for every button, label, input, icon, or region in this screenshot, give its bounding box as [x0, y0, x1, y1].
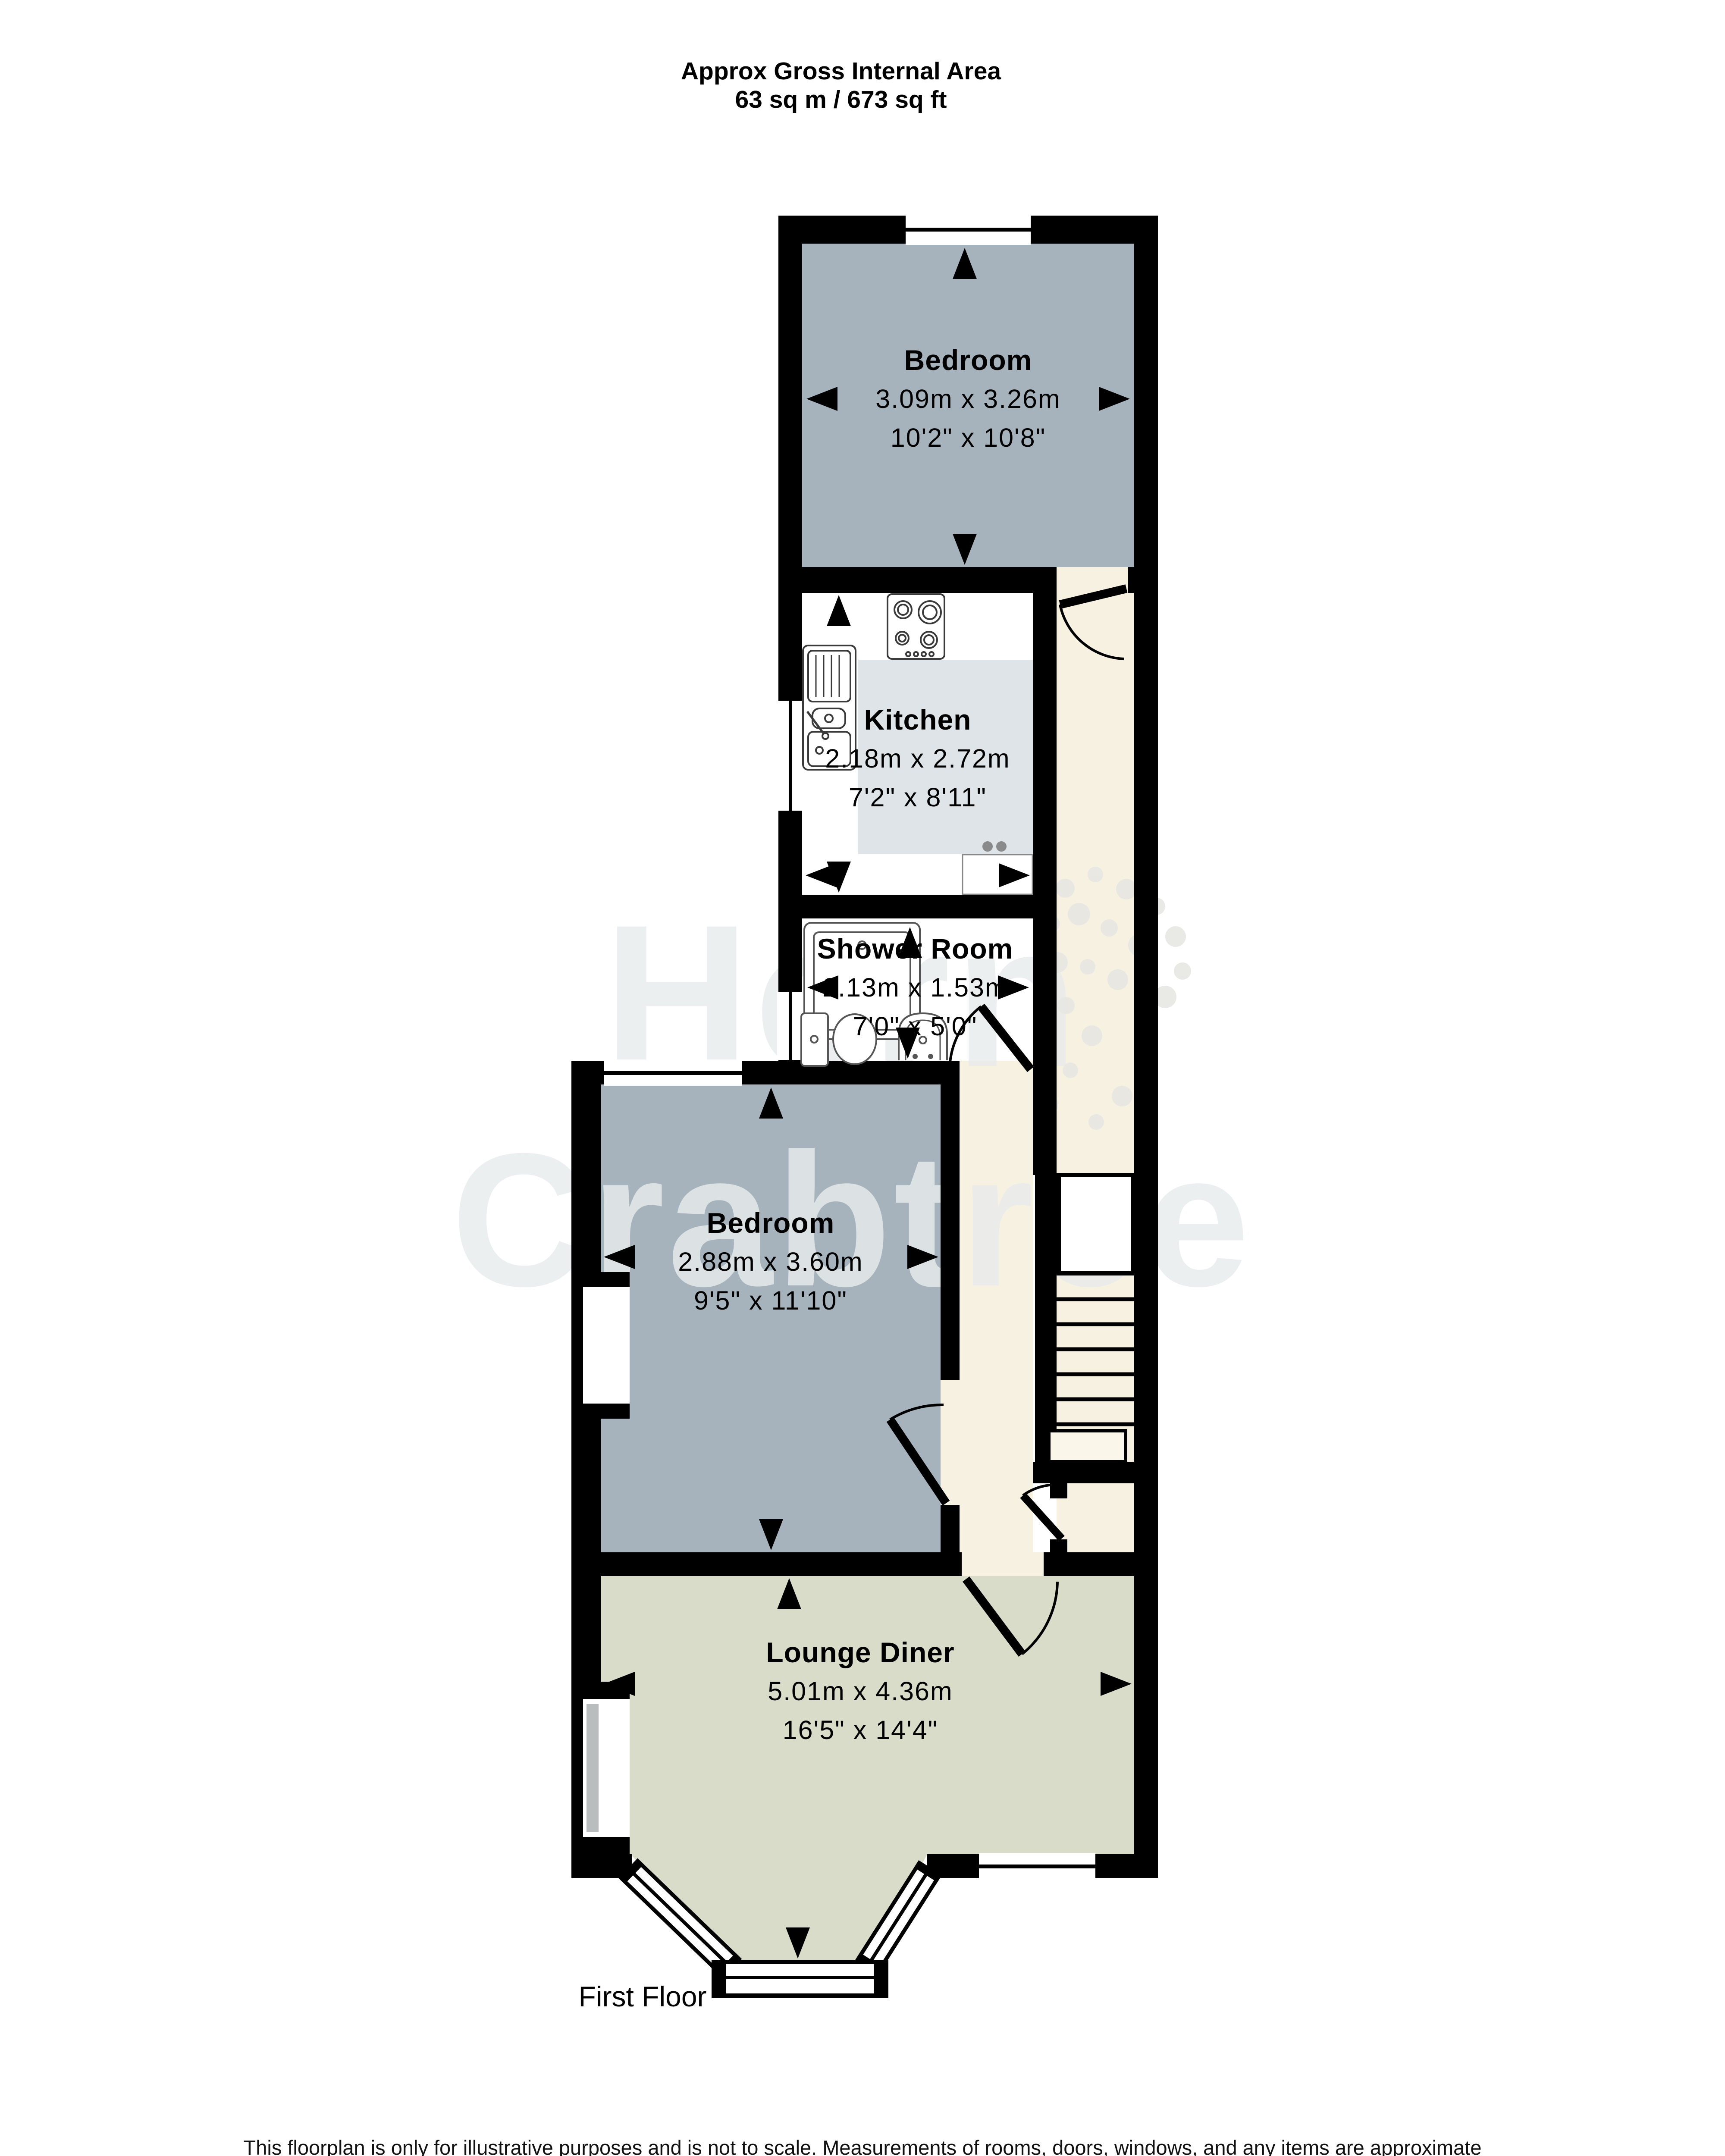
arrow-left-kitchen	[806, 863, 837, 887]
arrow-up-lounge	[777, 1578, 801, 1609]
stairs-landing	[1059, 1175, 1133, 1273]
floorplan-structure	[0, 0, 1725, 2156]
stairs-treads	[1057, 1299, 1134, 1424]
wall-bedroom-mid-right-a	[941, 1061, 960, 1380]
arrow-right-bedroom-mid	[907, 1245, 938, 1269]
room-size-metric: 2.88m x 3.60m	[678, 1242, 863, 1281]
room-label-bedroom-mid: Bedroom 2.88m x 3.60m 9'5" x 11'10"	[678, 1203, 863, 1320]
arrow-down-lounge	[786, 1927, 810, 1959]
room-size-imperial: 9'5" x 11'10"	[678, 1281, 863, 1320]
wall-bedroom-top-bottom-a	[778, 567, 1057, 593]
arrow-right-lounge	[1101, 1672, 1132, 1696]
room-label-lounge-diner: Lounge Diner 5.01m x 4.36m 16'5" x 14'4"	[766, 1633, 954, 1749]
door-lounge	[966, 1579, 1057, 1654]
wall-stairs-side	[1035, 1175, 1057, 1462]
room-name: Shower Room	[817, 929, 1013, 968]
room-label-bedroom-top: Bedroom 3.09m x 3.26m 10'2" x 10'8"	[875, 341, 1060, 457]
wall-lobby-stub-b	[1050, 1539, 1067, 1554]
hinge-dot	[982, 841, 993, 852]
room-label-shower-room: Shower Room 2.13m x 1.53m 7'0" x 5'0"	[817, 929, 1013, 1046]
room-size-imperial: 7'0" x 5'0"	[817, 1007, 1013, 1046]
wall-left-upper	[778, 216, 802, 1084]
bay-window	[618, 1858, 942, 1998]
bay-window-front-pane	[712, 1960, 888, 1998]
arrow-up-bedroom-mid	[759, 1087, 783, 1119]
arrow-right-bedroom-top	[1099, 387, 1130, 411]
room-size-metric: 5.01m x 4.36m	[766, 1672, 954, 1711]
window-lounge-right	[979, 1853, 1095, 1879]
chimney-recess-lounge-inner	[586, 1704, 599, 1832]
bay-window-right-pane	[855, 1860, 942, 1974]
arrow-up-bedroom-top	[953, 248, 977, 279]
room-size-metric: 2.18m x 2.72m	[825, 739, 1010, 778]
door-bedroom-mid	[890, 1405, 946, 1503]
wall-lounge-top-a	[571, 1552, 962, 1576]
room-size-metric: 2.13m x 1.53m	[817, 968, 1013, 1007]
room-label-kitchen: Kitchen 2.18m x 2.72m 7'2" x 8'11"	[825, 700, 1010, 817]
floorplan-page: Hern Crabtree	[0, 0, 1725, 2156]
window-kitchen-left	[777, 701, 803, 811]
room-size-metric: 3.09m x 3.26m	[875, 379, 1060, 418]
wall-right-outer	[1134, 216, 1158, 1878]
stairs	[1049, 1175, 1134, 1462]
room-size-imperial: 10'2" x 10'8"	[875, 418, 1060, 457]
wall-bedroom-top-bottom-b	[1128, 567, 1158, 593]
hinge-dot	[996, 841, 1007, 852]
arrow-down-bedroom-mid	[759, 1519, 783, 1550]
room-size-imperial: 16'5" x 14'4"	[766, 1711, 954, 1749]
arrow-left-bedroom-top	[806, 387, 837, 411]
wall-kitchen-hall	[1033, 591, 1057, 1175]
arrow-left-bedroom-mid	[604, 1245, 635, 1269]
room-name: Bedroom	[678, 1203, 863, 1242]
hob-icon	[888, 594, 944, 659]
kitchen-doorway-recess	[963, 841, 1032, 894]
window-bedroom-top	[906, 214, 1031, 245]
arrow-down-bedroom-top	[953, 534, 977, 565]
room-name: Bedroom	[875, 341, 1060, 379]
wall-lobby-top	[1033, 1462, 1134, 1483]
room-size-imperial: 7'2" x 8'11"	[825, 778, 1010, 817]
room-name: Lounge Diner	[766, 1633, 954, 1672]
window-bedroom-mid	[604, 1059, 742, 1086]
room-name: Kitchen	[825, 700, 1010, 739]
stairs-bottom-step	[1049, 1431, 1126, 1462]
wall-lounge-top-b	[1044, 1552, 1158, 1576]
window-shower-left	[777, 992, 803, 1060]
chimney-recess-bedroom	[583, 1287, 630, 1404]
wall-kitchen-shower	[778, 895, 1057, 918]
arrow-up-kitchen	[827, 595, 851, 626]
door-bedroom-top	[1060, 589, 1126, 659]
